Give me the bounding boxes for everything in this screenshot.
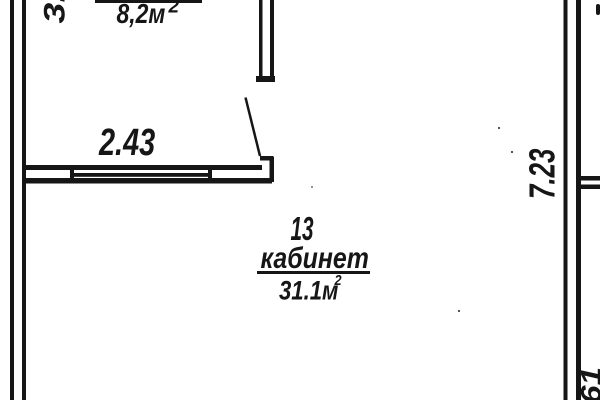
svg-text:кабинет: кабинет bbox=[261, 241, 369, 275]
svg-text:3.43: 3.43 bbox=[38, 0, 72, 24]
svg-text:7.23: 7.23 bbox=[522, 148, 562, 199]
svg-text:2.43: 2.43 bbox=[98, 121, 155, 164]
svg-text:2: 2 bbox=[334, 271, 342, 288]
svg-text:8,2м: 8,2м bbox=[117, 0, 166, 30]
svg-text:61: 61 bbox=[575, 367, 600, 400]
svg-text:31.1м: 31.1м bbox=[279, 277, 338, 307]
svg-text:2: 2 bbox=[168, 0, 180, 18]
